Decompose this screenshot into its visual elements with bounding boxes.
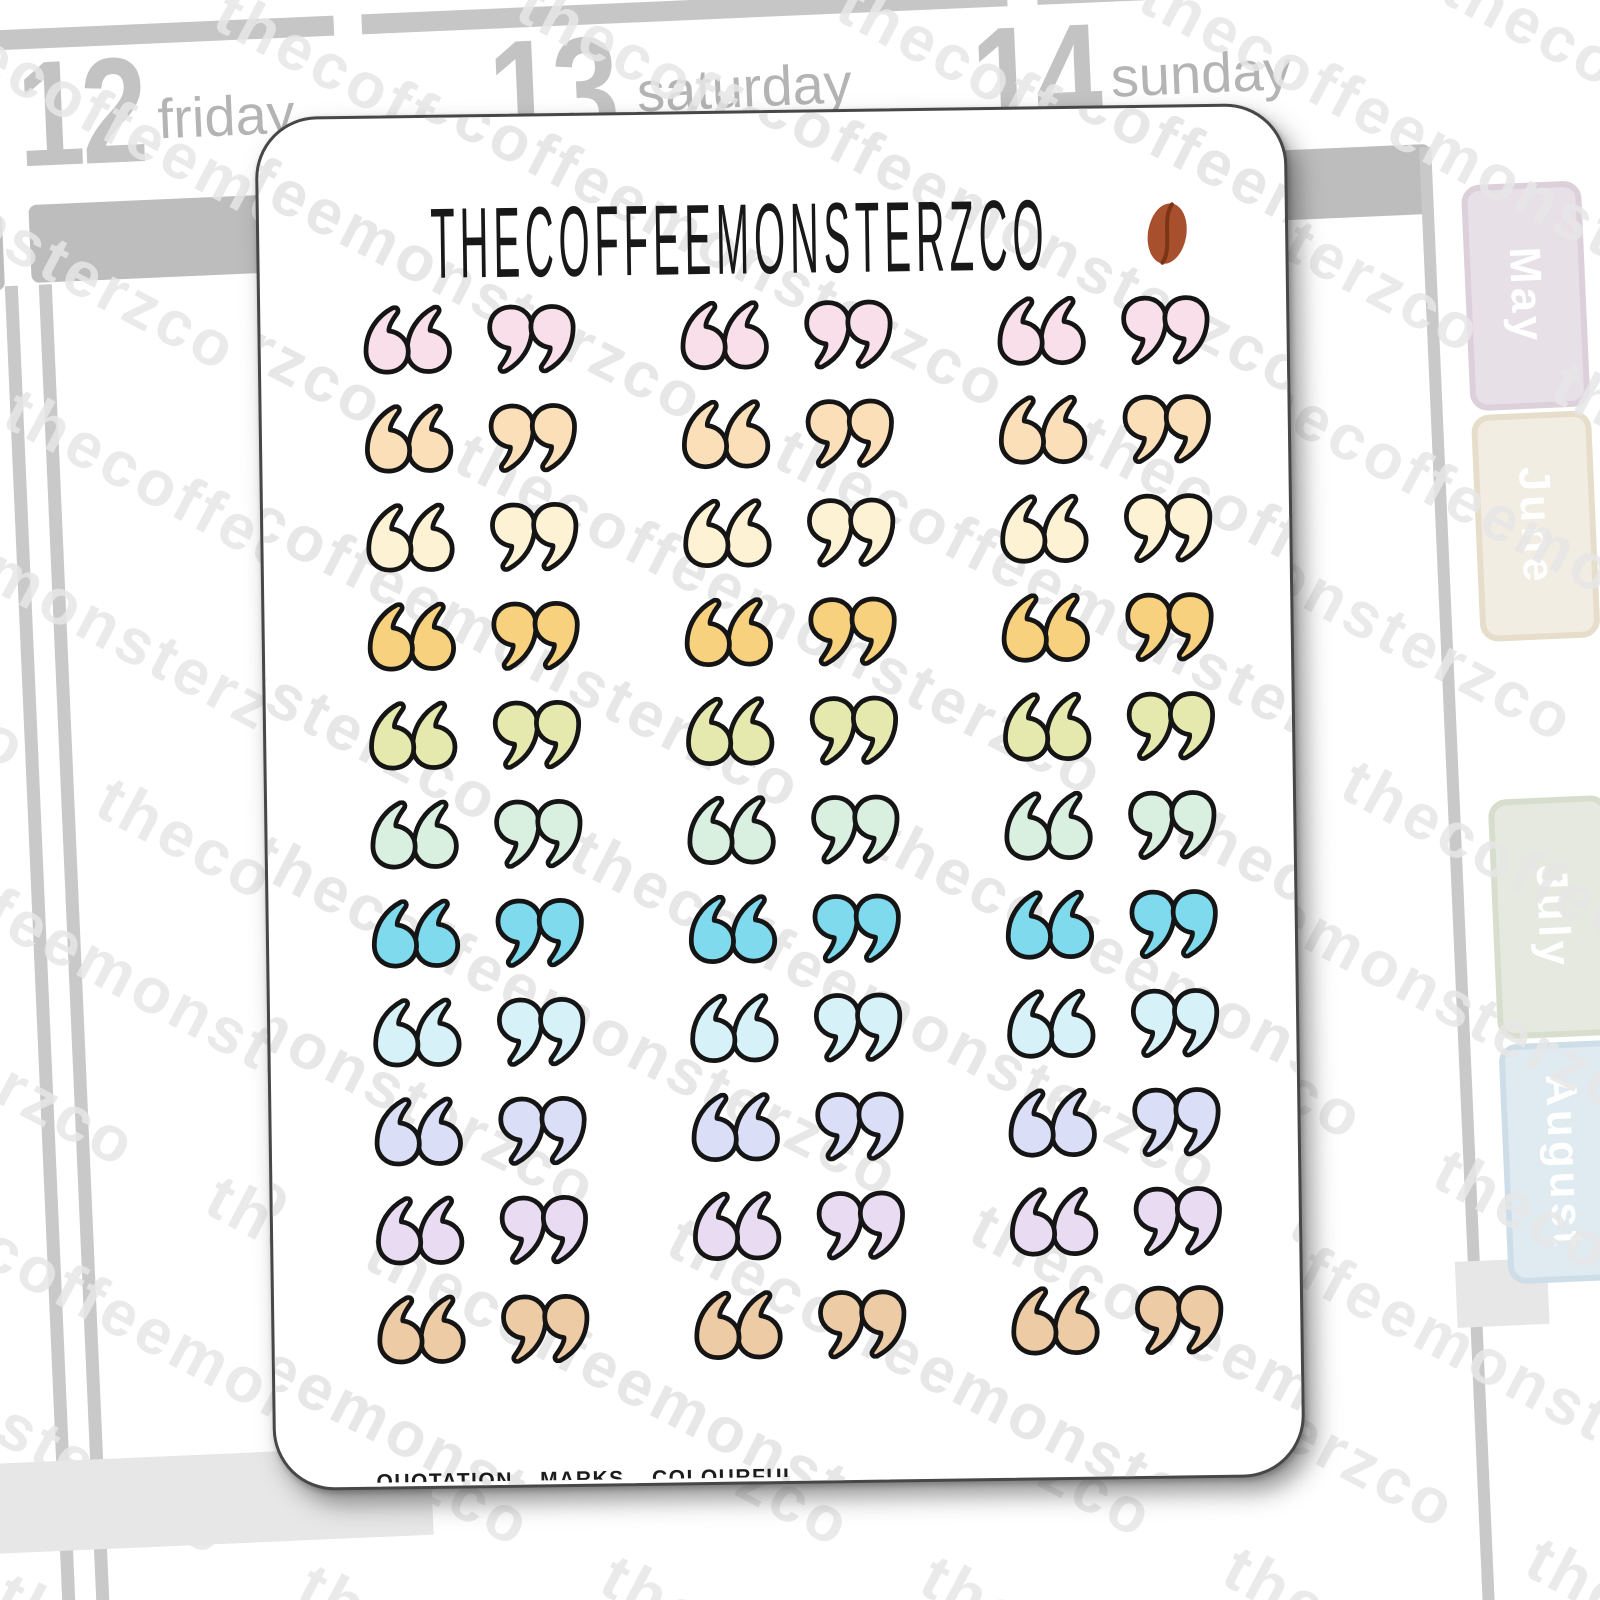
- month-tab-label: May: [1499, 246, 1553, 346]
- open-quote-pair: [995, 394, 1090, 465]
- open-quote-pair: [684, 795, 779, 866]
- open-quote-pair: [1008, 1285, 1103, 1356]
- month-tab-label: August: [1535, 1073, 1593, 1251]
- month-tab-august: August: [1498, 1040, 1600, 1285]
- quote-row-peach: [261, 377, 1288, 490]
- brand-title: THECOFFEEMONSTERZCO: [429, 177, 1048, 302]
- open-quote-pair: [1004, 988, 1099, 1059]
- open-quote-pair: [360, 304, 455, 375]
- close-quote-pair: [805, 595, 900, 666]
- open-quote-pair: [370, 997, 465, 1068]
- date-number-12: 12: [14, 34, 148, 189]
- open-quote-pair: [998, 592, 1093, 663]
- quote-row-celery: [265, 674, 1292, 787]
- quote-sticker-cell: [371, 1094, 590, 1167]
- quote-row-lilac: [272, 1169, 1299, 1282]
- close-quote-pair: [498, 1292, 593, 1363]
- close-quote-pair: [488, 599, 583, 670]
- quote-sticker-cell: [367, 797, 586, 870]
- quote-sticker-cell: [366, 698, 585, 771]
- open-quote-pair: [374, 1294, 469, 1365]
- close-quote-pair: [1118, 293, 1213, 364]
- open-quote-pair: [688, 1091, 783, 1162]
- quote-sticker-cell: [677, 298, 896, 371]
- close-quote-pair: [807, 694, 902, 765]
- month-tab-label: June: [1508, 466, 1563, 587]
- close-quote-pair: [491, 797, 586, 868]
- open-quote-pair: [373, 1195, 468, 1266]
- open-quote-pair: [361, 403, 456, 474]
- open-quote-pair: [690, 1190, 785, 1261]
- close-quote-pair: [485, 401, 580, 472]
- open-quote-pair: [367, 799, 462, 870]
- quote-row-gold: [264, 575, 1291, 688]
- close-quote-pair: [492, 896, 587, 967]
- quote-sticker-cell: [685, 892, 904, 965]
- quote-sticker-cell: [1004, 986, 1223, 1059]
- quote-row-periwinkle: [271, 1070, 1298, 1183]
- close-quote-pair: [1126, 887, 1221, 958]
- quote-rows: [260, 278, 1301, 1381]
- quote-sticker-cell: [370, 995, 589, 1068]
- quote-sticker-cell: [1005, 1085, 1224, 1158]
- quote-sticker-cell: [683, 694, 902, 767]
- close-quote-pair: [1124, 689, 1219, 760]
- month-tab-may: May: [1461, 180, 1591, 411]
- quote-sticker-cell: [680, 496, 899, 569]
- open-quote-pair: [687, 993, 782, 1064]
- quote-row-tan: [274, 1268, 1301, 1381]
- planner-header-bar: [1268, 144, 1433, 221]
- quote-sticker-cell: [363, 500, 582, 573]
- month-tab-july: July: [1488, 795, 1600, 1040]
- quote-sticker-cell: [681, 595, 900, 668]
- open-quote-pair: [678, 399, 773, 470]
- sheet-header: THECOFFEEMONSTERZCO: [259, 188, 1286, 290]
- close-quote-pair: [1125, 788, 1220, 859]
- open-quote-pair: [680, 498, 775, 569]
- close-quote-pair: [1121, 491, 1216, 562]
- close-quote-pair: [487, 500, 582, 571]
- quote-sticker-cell: [374, 1292, 593, 1365]
- open-quote-pair: [1000, 691, 1095, 762]
- quote-sticker-cell: [360, 302, 579, 375]
- quote-sticker-cell: [687, 991, 906, 1064]
- planner-column-line: [39, 284, 117, 1600]
- open-quote-pair: [683, 696, 778, 767]
- quote-sticker-cell: [690, 1189, 909, 1262]
- planner-header-bar: [0, 212, 5, 294]
- month-tab-label: July: [1526, 864, 1580, 970]
- quote-row-mint: [267, 773, 1294, 886]
- quote-sticker-cell: [684, 793, 903, 866]
- close-quote-pair: [1128, 986, 1223, 1057]
- close-quote-pair: [1119, 392, 1214, 463]
- quote-sticker-cell: [995, 392, 1214, 465]
- open-quote-pair: [1001, 790, 1096, 861]
- close-quote-pair: [811, 991, 906, 1062]
- open-quote-pair: [681, 597, 776, 668]
- quote-sticker-cell: [998, 590, 1217, 663]
- sheet-caption: QUOTATION MARKS COLOURFUL: [376, 1461, 1096, 1483]
- quote-sticker-cell: [364, 599, 583, 672]
- close-quote-pair: [490, 698, 585, 769]
- quote-sticker-cell: [1008, 1283, 1227, 1356]
- planner-top-strip: [361, 0, 1007, 34]
- close-quote-pair: [1122, 590, 1217, 661]
- close-quote-pair: [1129, 1085, 1224, 1156]
- open-quote-pair: [364, 601, 459, 672]
- product-photo: { "sheet": { "brand": "THECOFFEEMONSTERZ…: [0, 0, 1600, 1600]
- open-quote-pair: [371, 1096, 466, 1167]
- quote-sticker-cell: [678, 397, 897, 470]
- close-quote-pair: [497, 1193, 592, 1264]
- open-quote-pair: [994, 295, 1089, 366]
- open-quote-pair: [1002, 889, 1097, 960]
- quote-sticker-cell: [994, 293, 1213, 366]
- open-quote-pair: [368, 898, 463, 969]
- sticker-sheet-content: THECOFFEEMONSTERZCO QUOTATION MARKS COLO…: [259, 188, 1304, 1491]
- close-quote-pair: [1132, 1283, 1227, 1354]
- open-quote-pair: [685, 894, 780, 965]
- open-quote-pair: [997, 493, 1092, 564]
- open-quote-pair: [1005, 1087, 1100, 1158]
- open-quote-pair: [366, 700, 461, 771]
- quote-sticker-cell: [1006, 1184, 1225, 1257]
- open-quote-pair: [691, 1289, 786, 1360]
- quote-row-sky-blue: [268, 872, 1295, 985]
- close-quote-pair: [494, 995, 589, 1066]
- open-quote-pair: [1006, 1186, 1101, 1257]
- close-quote-pair: [812, 1090, 907, 1161]
- close-quote-pair: [484, 302, 579, 373]
- close-quote-pair: [813, 1189, 908, 1260]
- day-name-sunday: sunday: [1110, 42, 1293, 106]
- quote-row-cream: [263, 476, 1290, 589]
- quote-sticker-cell: [997, 491, 1216, 564]
- quote-sticker-cell: [688, 1090, 907, 1163]
- close-quote-pair: [495, 1094, 590, 1165]
- quote-sticker-cell: [691, 1288, 910, 1361]
- close-quote-pair: [1130, 1184, 1225, 1255]
- close-quote-pair: [804, 496, 899, 567]
- close-quote-pair: [808, 793, 903, 864]
- close-quote-pair: [801, 298, 896, 369]
- close-quote-pair: [815, 1288, 910, 1359]
- sticker-sheet: thecoffeemonsterzco thecoffeemonsterzco …: [254, 103, 1305, 1491]
- open-quote-pair: [677, 300, 772, 371]
- coffee-bean-icon: [1143, 196, 1192, 271]
- open-quote-pair: [363, 502, 458, 573]
- close-quote-pair: [802, 397, 897, 468]
- quote-sticker-cell: [1001, 788, 1220, 861]
- quote-sticker-cell: [1002, 887, 1221, 960]
- month-tab-june: June: [1471, 410, 1600, 642]
- quote-sticker-cell: [1000, 689, 1219, 762]
- quote-row-ice-blue: [270, 971, 1297, 1084]
- close-quote-pair: [809, 892, 904, 963]
- quote-sticker-cell: [373, 1193, 592, 1266]
- quote-sticker-cell: [368, 896, 587, 969]
- quote-sticker-cell: [361, 401, 580, 474]
